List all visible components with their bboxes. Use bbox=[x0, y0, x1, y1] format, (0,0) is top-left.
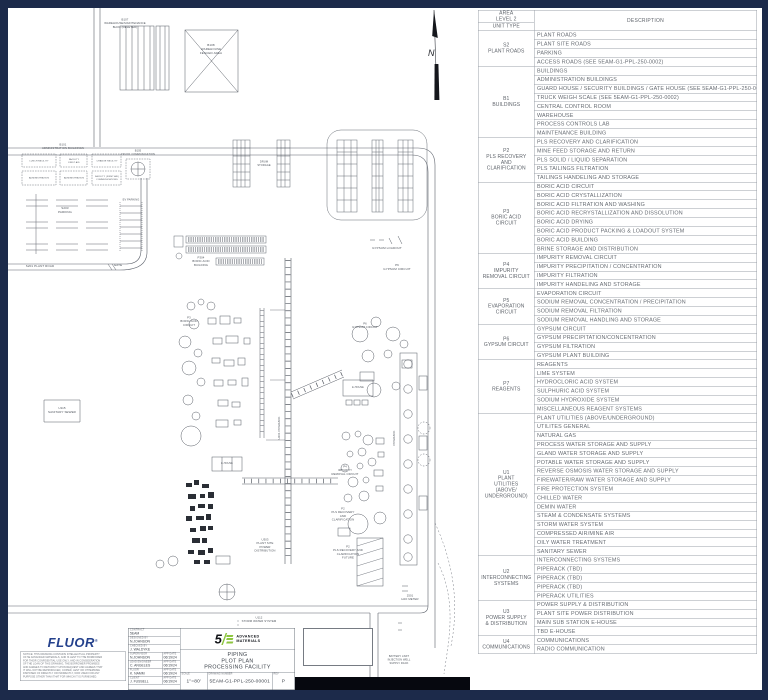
notes-box bbox=[303, 628, 373, 666]
impurity-circuit bbox=[341, 431, 384, 502]
area-description-cell: ACCESS ROADS (SEE 5EAM-G1-PPL-250-0002) bbox=[534, 57, 757, 66]
area-description-cell: UTILITES GENERAL bbox=[534, 422, 757, 431]
area-description-cell: BORIC ACID DRYING bbox=[534, 218, 757, 227]
area-group-cell: P2PLS RECOVERYANDCLARIFICATION bbox=[478, 138, 534, 182]
area-description-cell: BRINE STORAGE AND DISTRIBUTION bbox=[534, 244, 757, 253]
logo-row: 5 ADVANCED MATERIALS bbox=[181, 629, 295, 650]
area-description-cell: FIREWATER/RAW WATER STORAGE AND SUPPLY bbox=[534, 476, 757, 485]
area-table-row: U3POWER SUPPLY& DISTRIBUTIONPOWER SUPPLY… bbox=[478, 600, 757, 609]
area-description-cell: PIPERACK (TBD) bbox=[534, 565, 757, 574]
boric-acid-building bbox=[174, 236, 266, 265]
area-description-cell: BORIC ACID FILTRATION AND WASHING bbox=[534, 200, 757, 209]
area-group-cell: P5EVAPORATIONCIRCUIT bbox=[478, 289, 534, 325]
area-description-cell: IMPURITY HANDELING AND STORAGE bbox=[534, 280, 757, 289]
plot-plan-sheet: N B107 WAREHOUSE/MAINTENANCE BLDG (DELET… bbox=[8, 8, 470, 690]
titleblock-personnel-row: SUPERVISORN.JOHNSONAPP DATE06/19/24 bbox=[129, 653, 181, 661]
area-description-cell: POTABLE WATER STORAGE AND SUPPLY bbox=[534, 458, 757, 467]
area-description-cell: PROCESS CONTROLS LAB bbox=[534, 120, 757, 129]
area-table-row: P3BORIC ACIDCIRCUITBORIC ACID CIRCUIT bbox=[478, 182, 757, 191]
area-group-cell: S2PLANT ROADS bbox=[478, 31, 534, 67]
area-table-row: U4COMMUNICATIONSCOMMUNICATIONS bbox=[478, 636, 757, 645]
notice-text: NOTICE: THIS DRAWING CONTAINS INTELLECTU… bbox=[20, 651, 126, 681]
meter-ticks bbox=[398, 586, 408, 630]
5e-advanced-materials-logo: 5 ADVANCED MATERIALS bbox=[215, 633, 261, 646]
area-description-cell: PROCESS WATER STORAGE AND SUPPLY bbox=[534, 440, 757, 449]
area-description-cell: GUARD HOUSE / SECURITY BUILDINGS / GATE … bbox=[534, 84, 757, 93]
fluor-logo: FLUOR® bbox=[20, 634, 126, 649]
e-houses bbox=[212, 380, 373, 471]
area-description-cell: SODIUM REMOVAL HANDLING AND STORAGE bbox=[534, 316, 757, 325]
area-description-cell: SODIUM REMOVAL FILTRATION bbox=[534, 307, 757, 316]
drawing-viewer: { "colors": { "frame_navy": "#1c2a4a", "… bbox=[0, 0, 768, 700]
area-description-cell: ADMINISTRATION BUILDINGS bbox=[534, 75, 757, 84]
unit-type-header: UNIT TYPE bbox=[478, 22, 534, 31]
5e-brand-text: ADVANCED MATERIALS bbox=[236, 635, 260, 644]
area-description-cell: STORM WATER SYSTEM bbox=[534, 520, 757, 529]
boric-acid-circuit bbox=[179, 299, 264, 446]
area-group-cell: P3BORIC ACIDCIRCUIT bbox=[478, 182, 534, 253]
area-description-cell: GLAND WATER STORAGE AND SUPPLY bbox=[534, 449, 757, 458]
area-group-cell: U4COMMUNICATIONS bbox=[478, 636, 534, 654]
area-description-cell: CENTRAL CONTROL ROOM bbox=[534, 102, 757, 111]
registered-mark: ® bbox=[95, 639, 98, 644]
redaction-box bbox=[295, 677, 470, 690]
area-legend-panel: AREALEVEL 2 DESCRIPTION UNIT TYPE S2PLAN… bbox=[470, 8, 762, 690]
piperacks bbox=[242, 258, 344, 564]
fluor-title-area: FLUOR® NOTICE: THIS DRAWING CONTAINS INT… bbox=[20, 634, 126, 696]
area-description-cell: DEMIN WATER bbox=[534, 502, 757, 511]
area-description-cell: GYPSUM PLANT BUILDING bbox=[534, 351, 757, 360]
area-table-row: P6GYPSUM CIRCUITGYPSUM CIRCUIT bbox=[478, 324, 757, 333]
ponds bbox=[233, 130, 427, 220]
warehouse-area bbox=[120, 26, 238, 92]
area-table-row: P4IMPURITYREMOVAL CIRCUITIMPURITY REMOVA… bbox=[478, 253, 757, 262]
area-group-cell: U2INTERCONNECTINGSYSTEMS bbox=[478, 556, 534, 600]
area-description-cell: STEAM & CONDENSATE SYSTEMS bbox=[534, 511, 757, 520]
drawing-title: PIPING PLOT PLAN PROCESSING FACILITY bbox=[181, 650, 295, 673]
truck-scale bbox=[131, 162, 145, 176]
area-description-cell: GYPSUM PRECIPITATION/CONCENTRATION bbox=[534, 333, 757, 342]
area-table-row: U2INTERCONNECTINGSYSTEMSINTERCONNECTING … bbox=[478, 556, 757, 565]
area-description-cell: SANITARY SEWER bbox=[534, 547, 757, 556]
5e-logo-bars-icon bbox=[226, 635, 233, 644]
north-label: N bbox=[428, 48, 435, 58]
sanitary-sewer-box bbox=[44, 400, 80, 422]
area-description-cell: OILY WATER TREATMENT bbox=[534, 538, 757, 547]
area-description-cell: MINE FEED STORAGE AND RETURN bbox=[534, 146, 757, 155]
pls-recovery bbox=[338, 512, 386, 586]
area-group-cell: B1BUILDINGS bbox=[478, 66, 534, 137]
area-description-cell: PLS SOLID / LIQUID SEPARATION bbox=[534, 155, 757, 164]
area-description-cell: PLANT SITE ROADS bbox=[534, 40, 757, 49]
title-block: CONTRACT5EAMDESIGNED BYN.JOHNSONCHECKED … bbox=[128, 628, 295, 690]
area-description-cell: SODIUM REMOVAL CONCENTRATION / PRECIPITA… bbox=[534, 298, 757, 307]
area-description-cell: SODIUM HYDROXIDE SYSTEM bbox=[534, 396, 757, 405]
parking bbox=[26, 194, 142, 270]
area-description-cell: IMPURITY FILTRATION bbox=[534, 271, 757, 280]
area-description-table: AREALEVEL 2 DESCRIPTION UNIT TYPE S2PLAN… bbox=[478, 10, 757, 654]
area-description-cell: NATURAL GAS bbox=[534, 431, 757, 440]
area-description-cell: WAREHOUSE bbox=[534, 111, 757, 120]
titleblock-personnel-row: FLUORK. NAMMAPP DATE06/19/24 bbox=[129, 669, 181, 677]
area-description-cell: FIRE PROTECTION SYSTEM bbox=[534, 485, 757, 494]
area-description-cell: COMPRESSED AIR/MINE AIR bbox=[534, 529, 757, 538]
area-description-cell: GYPSUM CIRCUIT bbox=[534, 324, 757, 333]
personnel-table: CONTRACT5EAMDESIGNED BYN.JOHNSONCHECKED … bbox=[129, 629, 181, 690]
rev-cell: REV P bbox=[273, 673, 295, 690]
description-col-header: DESCRIPTION bbox=[534, 10, 757, 31]
power-distribution bbox=[186, 480, 214, 564]
area-group-cell: P6GYPSUM CIRCUIT bbox=[478, 324, 534, 360]
area-description-cell: PIPERACK (TBD) bbox=[534, 582, 757, 591]
area-table-row: P2PLS RECOVERYANDCLARIFICATIONPLS RECOVE… bbox=[478, 138, 757, 147]
titleblock-personnel-row: CONTRACT5EAM bbox=[129, 629, 181, 637]
area-description-cell: REAGENTS bbox=[534, 360, 757, 369]
area-description-cell: POWER SUPPLY & DISTRIBUTION bbox=[534, 600, 757, 609]
area-description-cell: PLS RECOVERY AND CLARIFICATION bbox=[534, 138, 757, 147]
tank-row bbox=[400, 353, 430, 565]
area-group-cell: P4IMPURITYREMOVAL CIRCUIT bbox=[478, 253, 534, 289]
area-description-cell: COMMUNICATIONS bbox=[534, 636, 757, 645]
area-group-cell: U1PLANTUTILITIES(ABOVE/UNDERGROUND) bbox=[478, 413, 534, 555]
area-description-cell: PLS TAILINGS FILTRATION bbox=[534, 164, 757, 173]
area-description-cell: IMPURITY REMOVAL CIRCUIT bbox=[534, 253, 757, 262]
area-table-row: S2PLANT ROADSPLANT ROADS bbox=[478, 31, 757, 40]
area-description-cell: MISCELLANEOUS REAGENT SYSTEMS bbox=[534, 404, 757, 413]
area-description-cell: EVAPORATION CIRCUIT bbox=[534, 289, 757, 298]
area-group-cell: U3POWER SUPPLY& DISTRIBUTION bbox=[478, 600, 534, 636]
area-description-cell: INTERCONNECTING SYSTEMS bbox=[534, 556, 757, 565]
area-description-cell: IMPURITY PRECIPITATION / CONCENTRATION bbox=[534, 262, 757, 271]
area-description-cell: BORIC ACID CIRCUIT bbox=[534, 182, 757, 191]
scale-cell: SCALE 1"=80' bbox=[181, 673, 208, 690]
area-group-cell: P7REAGENTS bbox=[478, 360, 534, 413]
north-arrow-icon: N bbox=[428, 10, 439, 100]
area-description-cell: RADIO COMMUNICATION bbox=[534, 645, 757, 654]
area-col-header: AREALEVEL 2 bbox=[478, 10, 534, 22]
gypsum-circuit bbox=[352, 236, 412, 397]
area-description-cell: PIPERACK (TBD) bbox=[534, 574, 757, 583]
area-description-cell: BORIC ACID PRODUCT PACKING & LOADOUT SYS… bbox=[534, 227, 757, 236]
area-description-cell: GYPSUM FILTRATION bbox=[534, 342, 757, 351]
area-description-cell: TAILINGS HANDELING AND STORAGE bbox=[534, 173, 757, 182]
area-description-cell: PLANT UTILITIES (ABOVE/UNDERGROUND) bbox=[534, 413, 757, 422]
area-description-cell: MAINTENANCE BUILDING bbox=[534, 129, 757, 138]
area-description-cell: PLANT ROADS bbox=[534, 31, 757, 40]
area-table-row: B1BUILDINGSBUILDINGS bbox=[478, 66, 757, 75]
area-table-row: P5EVAPORATIONCIRCUITEVAPORATION CIRCUIT bbox=[478, 289, 757, 298]
area-description-cell: SULPHURIC ACID SYSTEM bbox=[534, 387, 757, 396]
area-description-cell: BORIC ACID CRYSTALLIZATION bbox=[534, 191, 757, 200]
site-plan-drawing: N bbox=[8, 8, 470, 690]
titleblock-personnel-row: CLIENTJ. FUSSELLAPP DATE06/19/24 bbox=[129, 677, 181, 685]
area-description-cell: PLANT SITE POWER DISTRIBUTION bbox=[534, 609, 757, 618]
titleblock-personnel-row: CHECKED BYJ. WALDYKE bbox=[129, 645, 181, 653]
area-description-cell: BORIC ACID BUILDING bbox=[534, 235, 757, 244]
area-table-row: U1PLANTUTILITIES(ABOVE/UNDERGROUND)PLANT… bbox=[478, 413, 757, 422]
area-description-cell: BUILDINGS bbox=[534, 66, 757, 75]
area-table-row: P7REAGENTSREAGENTS bbox=[478, 360, 757, 369]
area-description-cell: HYDROCLORIC ACID SYSTEM bbox=[534, 378, 757, 387]
area-description-cell: PIPERACK UTILITIES bbox=[534, 591, 757, 600]
area-description-cell: REVERSE OSMOSIS WATER STORAGE AND SUPPLY bbox=[534, 467, 757, 476]
area-description-cell: BORIC ACID RECRYSTALLIZATION AND DISSOLU… bbox=[534, 209, 757, 218]
titleblock-personnel-row: LEAD ENGINEERC. ANGELESAPP DATE06/19/24 bbox=[129, 661, 181, 669]
area-description-cell: LIME SYSTEM bbox=[534, 369, 757, 378]
area-description-cell: PARKING bbox=[534, 49, 757, 58]
area-description-cell: MAIN SUB STATION E-HOUSE bbox=[534, 618, 757, 627]
area-description-cell: TRUCK WEIGH SCALE (SEE 5EAM-G1-PPL-250-0… bbox=[534, 93, 757, 102]
area-description-cell: CHILLED WATER bbox=[534, 493, 757, 502]
titleblock-personnel-row: DESIGNED BYN.JOHNSON bbox=[129, 637, 181, 645]
area-description-cell: TBD E-HOUSE bbox=[534, 627, 757, 636]
roads bbox=[8, 8, 455, 690]
drawing-number-cell: DRAWING NUMBER 5EAM-G1-PPL-250-00001 bbox=[208, 673, 273, 690]
